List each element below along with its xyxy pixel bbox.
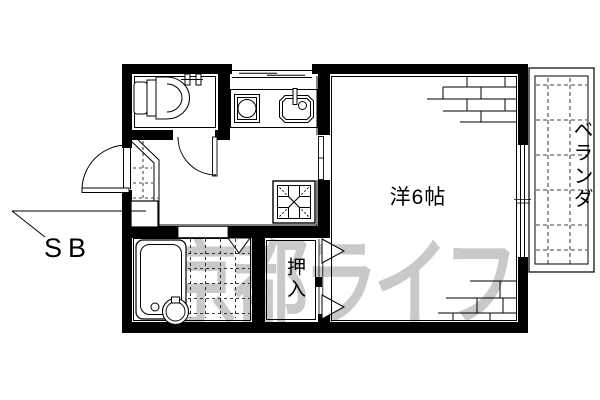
wall-left-lower: [122, 190, 132, 333]
toilet-room-outline: [135, 77, 216, 128]
stove-burner: [238, 100, 256, 118]
step-line-outer: [128, 138, 154, 227]
kitchen-doorway-leaf: [319, 137, 324, 180]
floorplan: 京都ライフ: [0, 0, 600, 400]
hatch-corner-tl: [278, 186, 289, 197]
hatch-corner-diagonals: [280, 188, 309, 217]
wall-toilet-right: [218, 74, 230, 140]
toilet-door-swing-arc: [178, 137, 216, 175]
stove-icon: [235, 95, 260, 123]
kitchen-counter: [231, 90, 318, 128]
shoe-box-icon: [131, 201, 158, 227]
floor-hatch-icon: [273, 181, 315, 223]
hatch-outer: [273, 181, 315, 223]
main-room-label: 洋6帖: [358, 181, 478, 211]
genkan-step: [128, 134, 159, 227]
toilet-room: [134, 74, 217, 176]
toilet-bowl: [156, 77, 190, 119]
toilet-paper-holder-icon: [181, 74, 203, 85]
hatch-center-x: [289, 197, 300, 208]
stove-outer: [235, 95, 260, 123]
kitchen-doorway-icon: [319, 137, 324, 180]
kitchen-window-icon: [232, 71, 312, 78]
shoe-box-label: SB: [44, 233, 92, 264]
brick-hatch-top-right: [427, 76, 517, 122]
kitchen: [134, 71, 318, 227]
toilet-door-leaf: [213, 137, 218, 176]
hatch-inner: [278, 186, 311, 219]
entrance: [12, 134, 159, 237]
wall-toilet-bottom-right: [215, 130, 230, 140]
wall-left-upper: [122, 64, 132, 148]
toilet-seat-hinge: [147, 80, 156, 116]
hatch-corner-br: [300, 208, 311, 219]
genkan-tiles: [133, 141, 158, 198]
wall-top-right: [312, 64, 528, 74]
toilet-icon: [134, 77, 190, 119]
sink-outer: [280, 96, 314, 123]
stove-inner: [238, 98, 257, 120]
wall-right-upper: [518, 64, 528, 145]
veranda-sliding-window-icon: [514, 145, 531, 257]
paper-holder-left: [185, 74, 190, 85]
toilet-door-icon: [178, 137, 217, 176]
entrance-door-leaf: [82, 188, 129, 193]
toilet-tank: [134, 82, 147, 114]
sink-faucet-knob: [299, 102, 307, 110]
wall-top-left: [122, 64, 232, 74]
watermark-text: 京都ライフ: [163, 237, 514, 333]
closet-label: 押入: [281, 257, 308, 301]
veranda-label: ベランダ: [567, 119, 596, 211]
bathtub-drain: [151, 303, 159, 311]
wall-hall-room-upper: [318, 74, 330, 135]
wall-hall-room-mid: [318, 180, 330, 238]
entrance-door-icon: [82, 145, 129, 193]
sink-faucet: [293, 89, 297, 105]
toilet-bowl-inner: [167, 84, 182, 112]
kitchen-sink-icon: [280, 89, 314, 123]
entrance-door-swing-arc: [82, 145, 127, 190]
hatch-corner-bl: [278, 208, 289, 219]
paper-holder-right: [196, 74, 201, 85]
wall-right-lower: [518, 257, 528, 333]
hatch-corner-tr: [300, 186, 311, 197]
floorplan-linework: [0, 0, 600, 400]
wall-toilet-bottom-left: [122, 130, 173, 140]
step-line-inner: [132, 134, 159, 227]
sink-inner: [283, 99, 311, 120]
